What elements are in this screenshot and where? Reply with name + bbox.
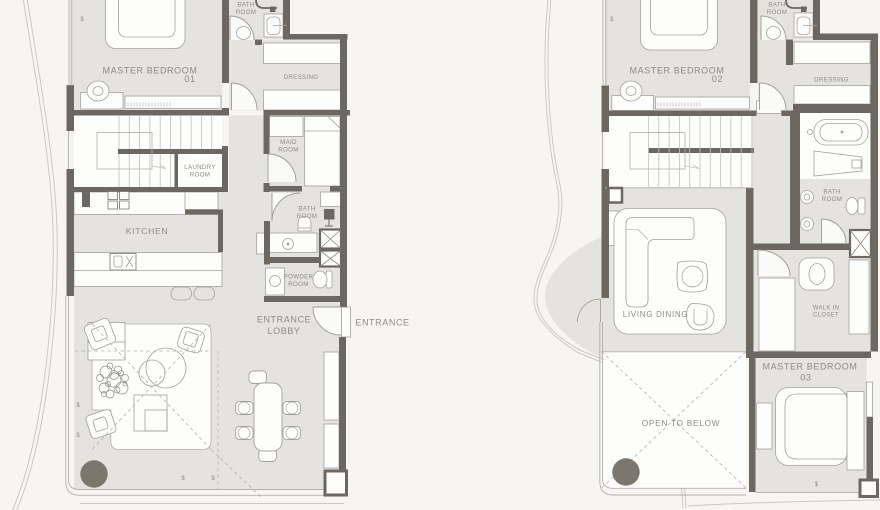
- svg-text:CLOSET: CLOSET: [813, 313, 839, 319]
- svg-text:LIVING DINING: LIVING DINING: [623, 310, 689, 319]
- svg-text:01: 01: [184, 74, 195, 84]
- svg-text:BATH: BATH: [768, 2, 785, 9]
- svg-text:DRESSING: DRESSING: [814, 77, 849, 84]
- svg-text:KITCHEN: KITCHEN: [126, 226, 169, 236]
- svg-text:POWDER: POWDER: [284, 274, 314, 281]
- svg-text:ROOM: ROOM: [822, 196, 842, 203]
- svg-text:LOBBY: LOBBY: [267, 326, 300, 336]
- svg-text:MASTER BEDROOM: MASTER BEDROOM: [630, 66, 725, 76]
- svg-text:03: 03: [800, 373, 811, 383]
- svg-text:MAID: MAID: [280, 139, 297, 146]
- svg-text:02: 02: [712, 74, 723, 84]
- svg-text:ROOM: ROOM: [190, 172, 210, 179]
- svg-text:BATH: BATH: [298, 206, 315, 213]
- svg-text:BATH: BATH: [823, 189, 840, 196]
- svg-text:ROOM: ROOM: [236, 9, 256, 16]
- svg-text:ENTRANCE: ENTRANCE: [257, 315, 311, 325]
- svg-text:ENTRANCE: ENTRANCE: [355, 318, 409, 328]
- svg-text:ROOM: ROOM: [767, 9, 787, 16]
- svg-text:DRESSING: DRESSING: [284, 74, 319, 81]
- svg-text:MASTER BEDROOM: MASTER BEDROOM: [103, 66, 198, 76]
- svg-text:ROOM: ROOM: [297, 213, 317, 220]
- svg-text:BATH: BATH: [237, 2, 254, 9]
- svg-text:LAUNDRY: LAUNDRY: [184, 164, 216, 171]
- svg-text:OPEN TO BELOW: OPEN TO BELOW: [642, 418, 720, 428]
- svg-text:ROOM: ROOM: [278, 147, 298, 154]
- svg-text:ROOM: ROOM: [288, 281, 308, 288]
- svg-text:WALK IN: WALK IN: [813, 306, 840, 312]
- svg-text:MASTER BEDROOM: MASTER BEDROOM: [763, 362, 858, 372]
